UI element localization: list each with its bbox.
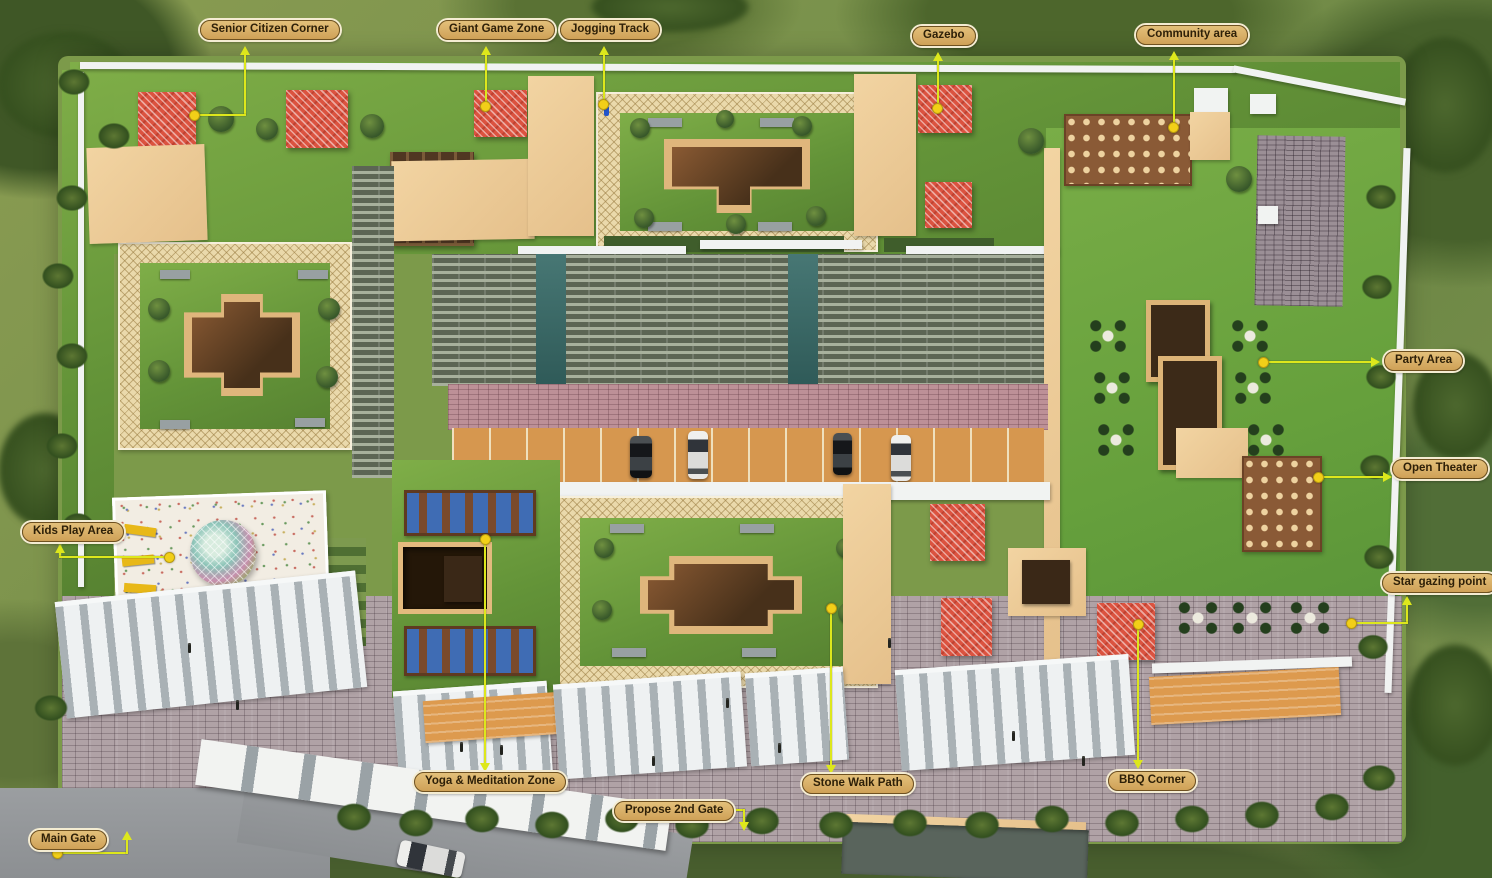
water-feature-step bbox=[444, 556, 482, 602]
star-gazing-table-set bbox=[1290, 602, 1330, 634]
leader-arrow-icon bbox=[933, 52, 943, 61]
leader-arrow-icon bbox=[240, 46, 250, 55]
bench bbox=[160, 420, 190, 429]
palm-tree bbox=[1238, 796, 1286, 834]
palm-tree bbox=[1356, 270, 1398, 304]
palm-tree bbox=[458, 800, 506, 838]
glazed-core bbox=[788, 254, 818, 386]
person-figure bbox=[1012, 733, 1015, 741]
label-senior-citizen-corner: Senior Citizen Corner bbox=[200, 20, 340, 40]
tower-roof bbox=[391, 159, 534, 241]
car bbox=[833, 433, 852, 475]
shrub bbox=[360, 114, 384, 138]
leader-arrow-icon bbox=[1133, 760, 1143, 769]
party-table-set bbox=[1235, 372, 1271, 404]
tower-roof bbox=[86, 144, 207, 244]
shrub bbox=[318, 298, 340, 320]
party-table-set bbox=[1248, 424, 1284, 456]
palm-tree bbox=[1358, 540, 1400, 574]
label-star-gazing-point: Star gazing point bbox=[1382, 573, 1492, 593]
yoga-mats-deck bbox=[404, 626, 536, 676]
parapet bbox=[700, 240, 862, 249]
pergola-red-roof bbox=[941, 598, 992, 656]
gazebo-red-roof bbox=[925, 182, 972, 228]
open-theater-seating bbox=[1242, 456, 1322, 552]
leader-line bbox=[59, 556, 167, 558]
pergola-red-roof bbox=[474, 90, 527, 137]
person-figure bbox=[888, 640, 891, 648]
leader-dot bbox=[480, 101, 491, 112]
car bbox=[630, 436, 652, 478]
yoga-mats-deck bbox=[404, 490, 536, 536]
person-figure bbox=[778, 745, 781, 753]
shrub bbox=[630, 118, 650, 138]
bench bbox=[742, 648, 776, 657]
leader-dot bbox=[598, 99, 609, 110]
leader-dot bbox=[1346, 618, 1357, 629]
palm-tree bbox=[52, 64, 96, 100]
palm-tree bbox=[1308, 788, 1356, 826]
palm-tree bbox=[958, 806, 1006, 844]
star-gazing-table-set bbox=[1232, 602, 1272, 634]
palm-tree bbox=[1360, 180, 1402, 214]
car bbox=[688, 431, 708, 479]
site-plan-rendering: Senior Citizen Corner Giant Game Zone Jo… bbox=[0, 0, 1492, 878]
pergola-red-roof bbox=[138, 92, 196, 148]
leader-arrow-icon bbox=[55, 544, 65, 553]
shrub bbox=[592, 600, 612, 620]
leader-arrow-icon bbox=[599, 46, 609, 55]
shrub bbox=[726, 214, 746, 234]
leader-line bbox=[126, 840, 128, 854]
pergola-red-roof bbox=[286, 90, 348, 148]
label-gazebo: Gazebo bbox=[912, 26, 976, 46]
palm-tree bbox=[392, 804, 440, 842]
label-community-area: Community area bbox=[1136, 25, 1248, 45]
gazebo-red-roof bbox=[918, 85, 972, 133]
wood-deck bbox=[1149, 667, 1341, 725]
leader-dot bbox=[1258, 357, 1269, 368]
palm-tree bbox=[330, 798, 378, 836]
pergola-red-roof bbox=[930, 504, 985, 561]
leader-dot bbox=[164, 552, 175, 563]
building-roof bbox=[1176, 428, 1248, 478]
leader-dot bbox=[1168, 122, 1179, 133]
person-figure bbox=[652, 758, 655, 766]
leader-dot bbox=[1133, 619, 1144, 630]
label-stone-walk-path: Stone Walk Path bbox=[802, 774, 914, 794]
palm-tree bbox=[738, 802, 786, 840]
person-figure bbox=[500, 747, 503, 755]
palm-tree bbox=[50, 338, 94, 374]
palm-tree bbox=[812, 806, 860, 844]
leader-line bbox=[603, 55, 605, 103]
leader-arrow-icon bbox=[122, 831, 132, 840]
party-table-set bbox=[1094, 372, 1130, 404]
label-bbq-corner: BBQ Corner bbox=[1108, 771, 1196, 791]
bench bbox=[610, 524, 644, 533]
leader-line bbox=[937, 61, 939, 107]
shrub bbox=[716, 110, 734, 128]
glazed-core bbox=[536, 254, 566, 386]
person-figure bbox=[188, 645, 191, 653]
bench bbox=[760, 118, 794, 127]
leader-arrow-icon bbox=[480, 763, 490, 772]
planter-box bbox=[1258, 206, 1278, 224]
label-yoga-meditation-zone: Yoga & Meditation Zone bbox=[414, 772, 566, 792]
planter-box bbox=[1250, 94, 1276, 114]
leader-arrow-icon bbox=[1371, 357, 1380, 367]
palm-tree bbox=[1356, 760, 1402, 796]
shrub bbox=[1226, 166, 1252, 192]
palm-tree bbox=[528, 806, 576, 844]
shrub bbox=[806, 206, 826, 226]
bench bbox=[758, 222, 792, 231]
shrub bbox=[316, 366, 338, 388]
shrub bbox=[1018, 128, 1044, 154]
leader-line bbox=[60, 852, 128, 854]
party-table-set bbox=[1090, 320, 1126, 352]
shrub bbox=[792, 116, 812, 136]
bench bbox=[295, 418, 325, 427]
tower-roof-glass bbox=[745, 667, 849, 767]
leader-arrow-icon bbox=[1169, 51, 1179, 60]
leader-arrow-icon bbox=[481, 46, 491, 55]
shrub bbox=[594, 538, 614, 558]
leader-line bbox=[1137, 628, 1139, 762]
party-table-set bbox=[1232, 320, 1268, 352]
bench bbox=[740, 524, 774, 533]
shrub bbox=[148, 298, 170, 320]
label-giant-game-zone: Giant Game Zone bbox=[438, 20, 555, 40]
person-figure bbox=[236, 702, 239, 710]
person-figure bbox=[726, 700, 729, 708]
label-jogging-track: Jogging Track bbox=[560, 20, 660, 40]
palm-tree bbox=[1168, 800, 1216, 838]
leader-arrow-icon bbox=[1383, 472, 1392, 482]
label-open-theater: Open Theater bbox=[1392, 459, 1488, 479]
bench bbox=[612, 648, 646, 657]
planter-pit bbox=[192, 302, 292, 388]
play-dome bbox=[190, 520, 256, 586]
leader-line bbox=[244, 55, 246, 115]
palm-tree bbox=[28, 690, 74, 726]
leader-line bbox=[743, 809, 745, 823]
planter-pit bbox=[648, 564, 794, 626]
leader-line bbox=[1266, 361, 1371, 363]
palm-tree bbox=[40, 428, 84, 464]
leader-line bbox=[1322, 476, 1383, 478]
palm-tree bbox=[1352, 630, 1394, 664]
leader-dot bbox=[480, 534, 491, 545]
leader-dot bbox=[826, 603, 837, 614]
party-table-set bbox=[1098, 424, 1134, 456]
palm-tree bbox=[50, 180, 94, 216]
leader-line bbox=[485, 55, 487, 105]
shrub bbox=[148, 360, 170, 382]
leader-arrow-icon bbox=[826, 765, 836, 774]
tower-roof bbox=[854, 74, 916, 236]
palm-tree bbox=[1028, 800, 1076, 838]
shrub bbox=[208, 106, 234, 132]
tower-facade bbox=[352, 166, 394, 478]
tower-roof-glass bbox=[553, 672, 747, 780]
building-roof bbox=[1190, 112, 1230, 160]
leader-dot bbox=[189, 110, 200, 121]
rooftop-structure bbox=[1194, 88, 1228, 112]
leader-line bbox=[1406, 605, 1408, 623]
palm-tree bbox=[1098, 804, 1146, 842]
leader-line bbox=[484, 543, 486, 765]
leader-dot bbox=[1313, 472, 1324, 483]
tower-facade bbox=[432, 254, 1054, 386]
label-kids-play-area: Kids Play Area bbox=[22, 522, 124, 542]
bench bbox=[648, 222, 682, 231]
palm-tree bbox=[92, 118, 136, 154]
tower-roof-glass bbox=[895, 654, 1135, 771]
label-party-area: Party Area bbox=[1384, 351, 1463, 371]
building-roof bbox=[843, 484, 891, 684]
leader-dot bbox=[932, 103, 943, 114]
person-figure bbox=[1082, 758, 1085, 766]
shrub bbox=[634, 208, 654, 228]
label-main-gate: Main Gate bbox=[30, 830, 107, 850]
shrub bbox=[256, 118, 278, 140]
leader-arrow-icon bbox=[739, 822, 749, 831]
tower-roof bbox=[528, 76, 594, 236]
palm-tree bbox=[886, 804, 934, 842]
palm-tree bbox=[36, 258, 80, 294]
bench bbox=[648, 118, 682, 127]
leader-line bbox=[1173, 60, 1175, 126]
leader-line bbox=[196, 114, 246, 116]
person-figure bbox=[460, 744, 463, 752]
bench bbox=[160, 270, 190, 279]
label-propose-2nd-gate: Propose 2nd Gate bbox=[614, 801, 734, 821]
leader-line bbox=[830, 612, 832, 767]
car bbox=[891, 435, 911, 481]
roof-court bbox=[1022, 560, 1070, 604]
bench bbox=[298, 270, 328, 279]
star-gazing-table-set bbox=[1178, 602, 1218, 634]
bbq-pavilion-roof bbox=[1097, 603, 1155, 660]
leader-arrow-icon bbox=[1402, 596, 1412, 605]
leader-line bbox=[1354, 622, 1408, 624]
courtyard-paving bbox=[448, 384, 1048, 430]
